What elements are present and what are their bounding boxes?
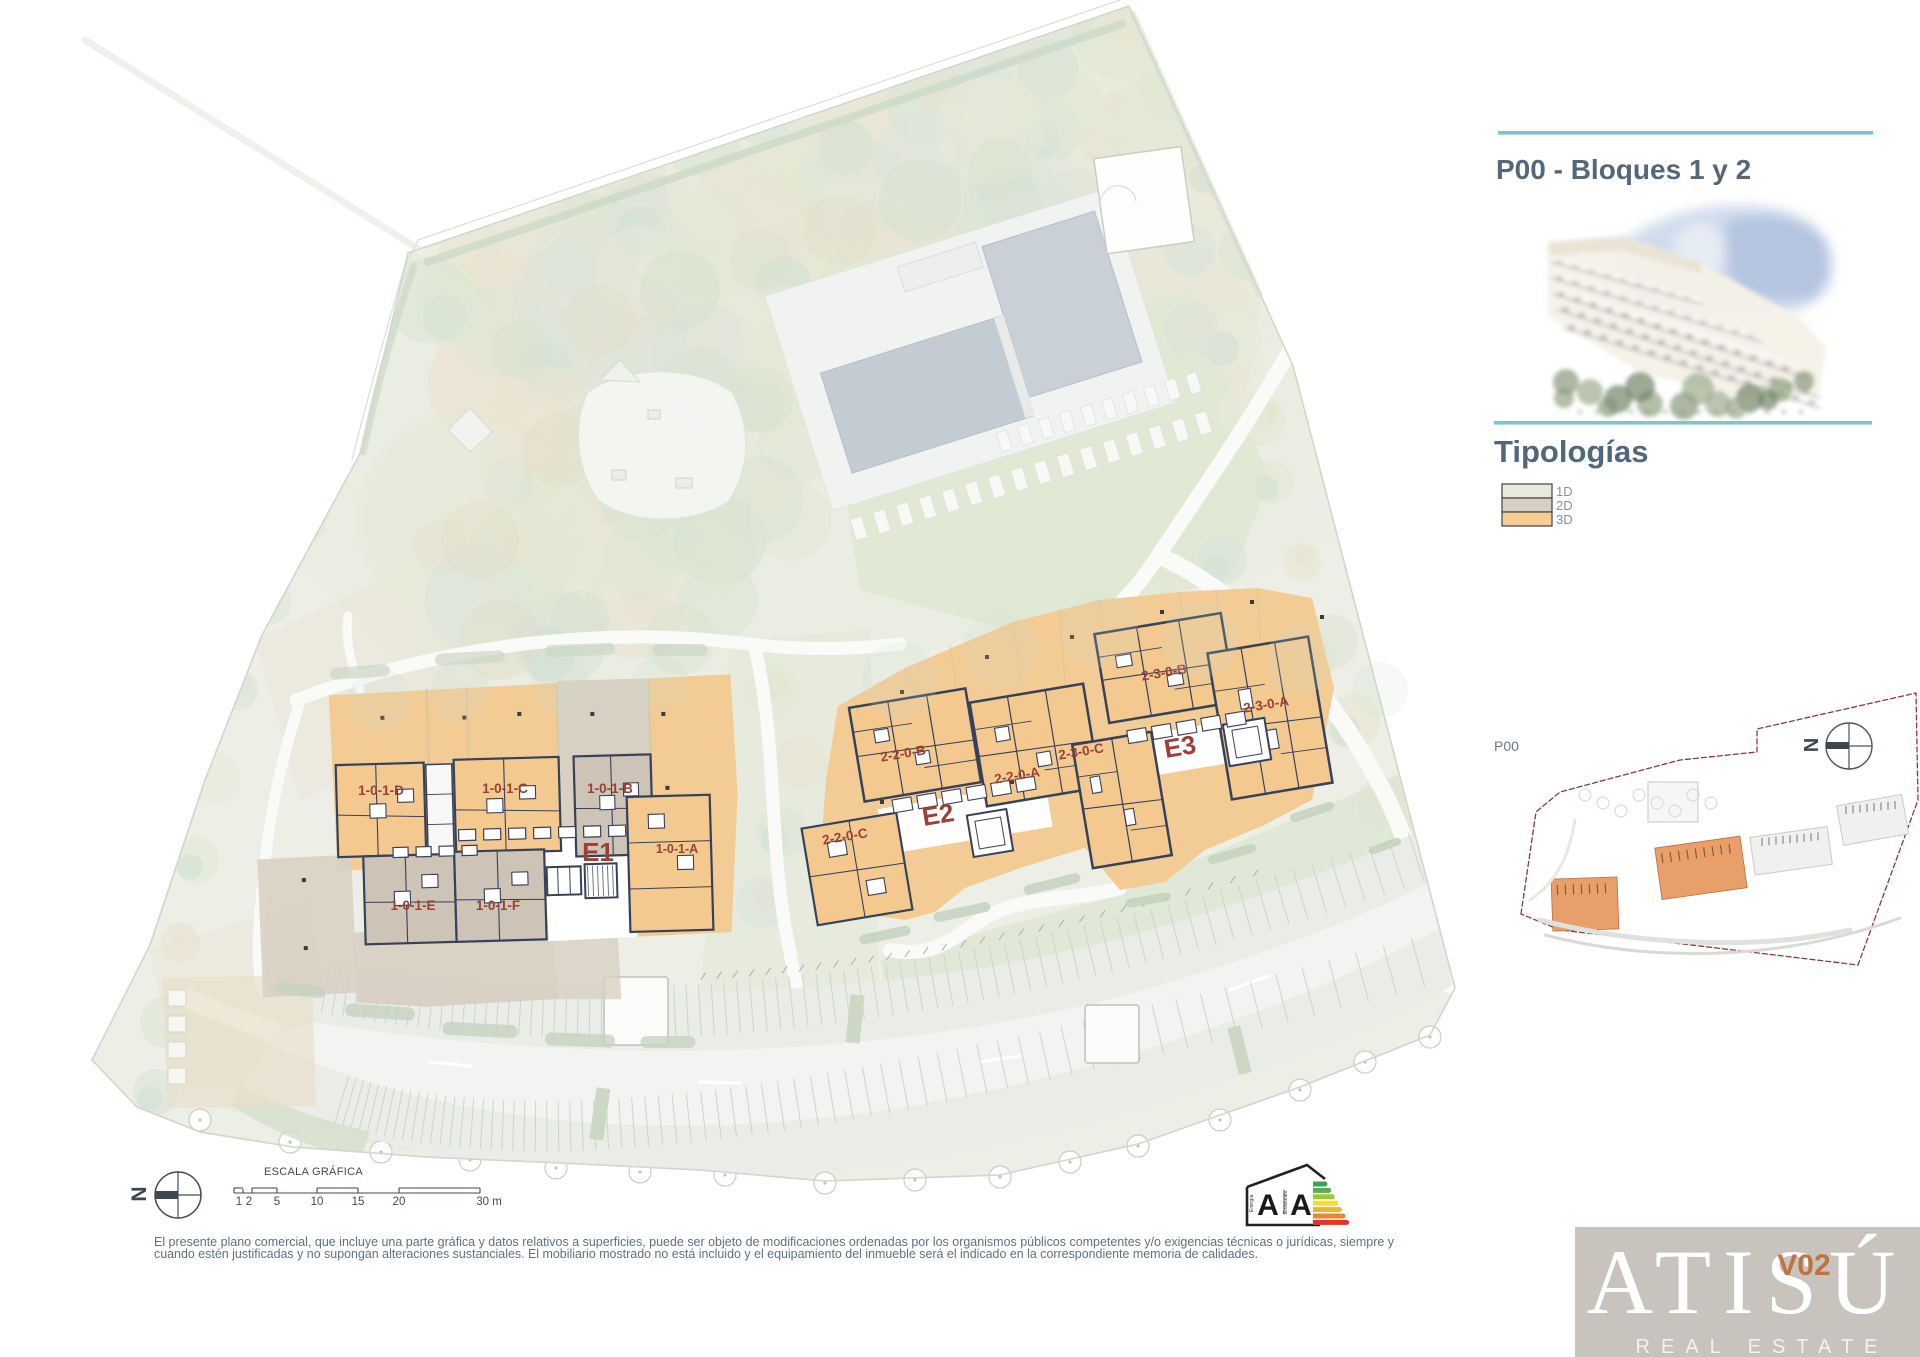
svg-text:N: N	[1801, 738, 1823, 752]
svg-text:1-0-1-B: 1-0-1-B	[587, 781, 633, 796]
svg-text:Tipologías: Tipologías	[1494, 434, 1648, 469]
svg-text:E1: E1	[582, 837, 614, 867]
svg-text:cuando estén justificadas y no: cuando estén justificadas y no supongan …	[154, 1246, 1258, 1261]
svg-text:1-0-1-D: 1-0-1-D	[358, 783, 404, 798]
svg-text:5: 5	[274, 1196, 280, 1208]
svg-text:A: A	[1257, 1189, 1279, 1222]
svg-text:A: A	[1290, 1189, 1312, 1222]
svg-text:REAL ESTATE: REAL ESTATE	[1636, 1336, 1889, 1357]
svg-text:P00: P00	[1494, 738, 1519, 754]
svg-text:3D: 3D	[1556, 512, 1573, 527]
svg-text:2: 2	[246, 1196, 252, 1208]
svg-text:1-0-1-C: 1-0-1-C	[482, 781, 528, 796]
svg-text:V02: V02	[1777, 1249, 1830, 1282]
svg-text:1-0-1-E: 1-0-1-E	[390, 898, 435, 913]
svg-text:1D: 1D	[1556, 484, 1573, 499]
svg-text:20: 20	[393, 1196, 406, 1208]
svg-text:Emisiones: Emisiones	[1283, 1190, 1289, 1214]
svg-text:30 m: 30 m	[476, 1196, 502, 1208]
svg-text:Energía: Energía	[1249, 1194, 1255, 1212]
svg-text:1: 1	[236, 1196, 242, 1208]
svg-text:15: 15	[352, 1196, 365, 1208]
svg-text:E2: E2	[920, 797, 956, 832]
svg-text:E3: E3	[1162, 729, 1198, 764]
svg-text:2D: 2D	[1556, 498, 1573, 513]
svg-text:10: 10	[311, 1196, 324, 1208]
svg-text:1-0-1-F: 1-0-1-F	[476, 898, 520, 913]
svg-text:N: N	[128, 1186, 151, 1201]
svg-text:ATISÚ: ATISÚ	[1587, 1231, 1908, 1333]
svg-text:1-0-1-A: 1-0-1-A	[656, 842, 698, 856]
svg-text:P00 - Bloques 1 y 2: P00 - Bloques 1 y 2	[1496, 154, 1751, 185]
svg-text:ESCALA GRÁFICA: ESCALA GRÁFICA	[264, 1165, 363, 1178]
